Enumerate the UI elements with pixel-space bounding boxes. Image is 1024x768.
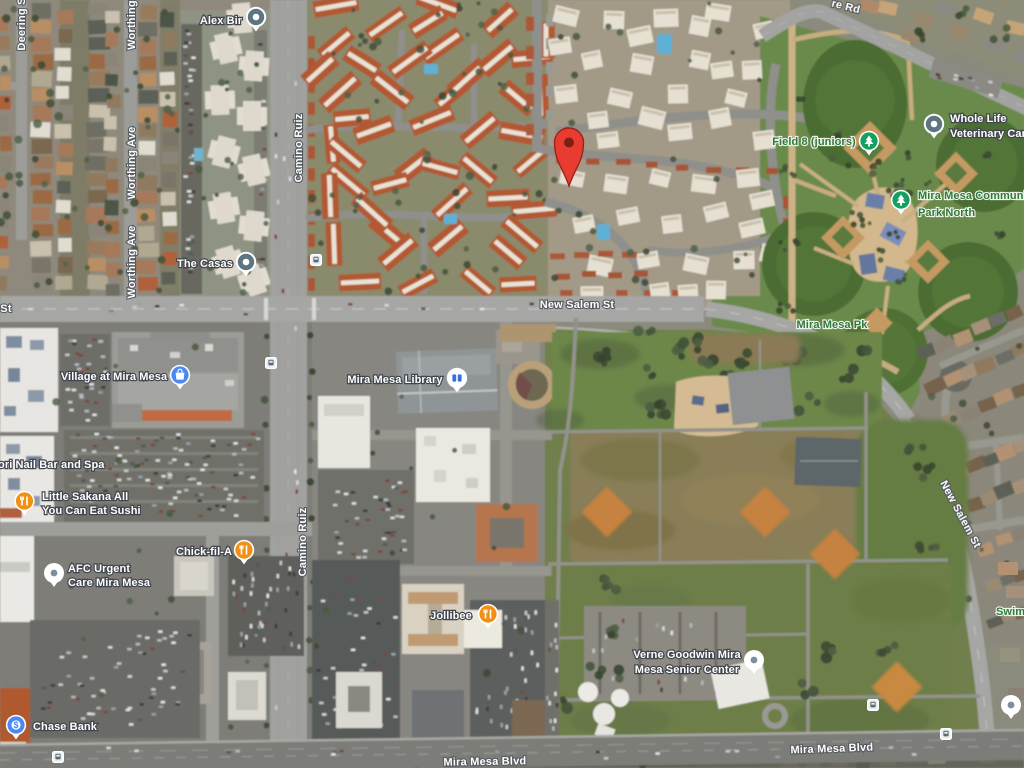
svg-text:Mira Mesa Communit: Mira Mesa Communit (918, 190, 1024, 202)
svg-text:Mira Mesa Pk: Mira Mesa Pk (797, 319, 869, 331)
svg-text:Deering S: Deering S (16, 0, 28, 51)
svg-text:Mesa Senior Center: Mesa Senior Center (635, 664, 740, 676)
svg-text:St: St (0, 303, 12, 315)
svg-text:Field 8 (juniors): Field 8 (juniors) (772, 136, 856, 148)
svg-text:The Casas: The Casas (177, 258, 233, 270)
svg-text:Worthing Ave: Worthing Ave (126, 226, 138, 299)
svg-text:Care Mira Mesa: Care Mira Mesa (68, 577, 151, 589)
svg-text:Chick-fil-A: Chick-fil-A (176, 546, 232, 558)
svg-text:Park North: Park North (918, 207, 975, 219)
svg-text:Worthing Ave: Worthing Ave (126, 127, 138, 200)
svg-text:Village at Mira Mesa: Village at Mira Mesa (61, 371, 168, 383)
svg-text:You Can Eat Sushi: You Can Eat Sushi (42, 505, 141, 517)
svg-text:New Salem St: New Salem St (540, 299, 615, 311)
svg-text:Veterinary Care: Veterinary Care (950, 128, 1024, 140)
svg-text:Little Sakana All: Little Sakana All (42, 491, 128, 503)
svg-text:Mira Mesa Library: Mira Mesa Library (347, 374, 443, 386)
svg-text:Whole Life: Whole Life (950, 113, 1007, 125)
svg-text:Jollibee: Jollibee (430, 610, 472, 622)
svg-text:AFC Urgent: AFC Urgent (68, 563, 130, 575)
svg-text:Verne Goodwin Mira: Verne Goodwin Mira (633, 649, 741, 661)
svg-text:Worthing: Worthing (126, 0, 138, 50)
svg-text:Chase Bank: Chase Bank (33, 721, 98, 733)
svg-text:Mira Mesa Blvd: Mira Mesa Blvd (443, 755, 526, 768)
svg-text:ori Nail Bar and Spa: ori Nail Bar and Spa (0, 459, 105, 471)
svg-text:Swimm: Swimm (996, 606, 1024, 618)
svg-text:Camino Ruiz: Camino Ruiz (293, 113, 305, 182)
svg-text:Camino Ruiz: Camino Ruiz (297, 507, 309, 576)
svg-text:$: $ (13, 720, 18, 730)
svg-text:Alex Bir: Alex Bir (200, 15, 243, 27)
